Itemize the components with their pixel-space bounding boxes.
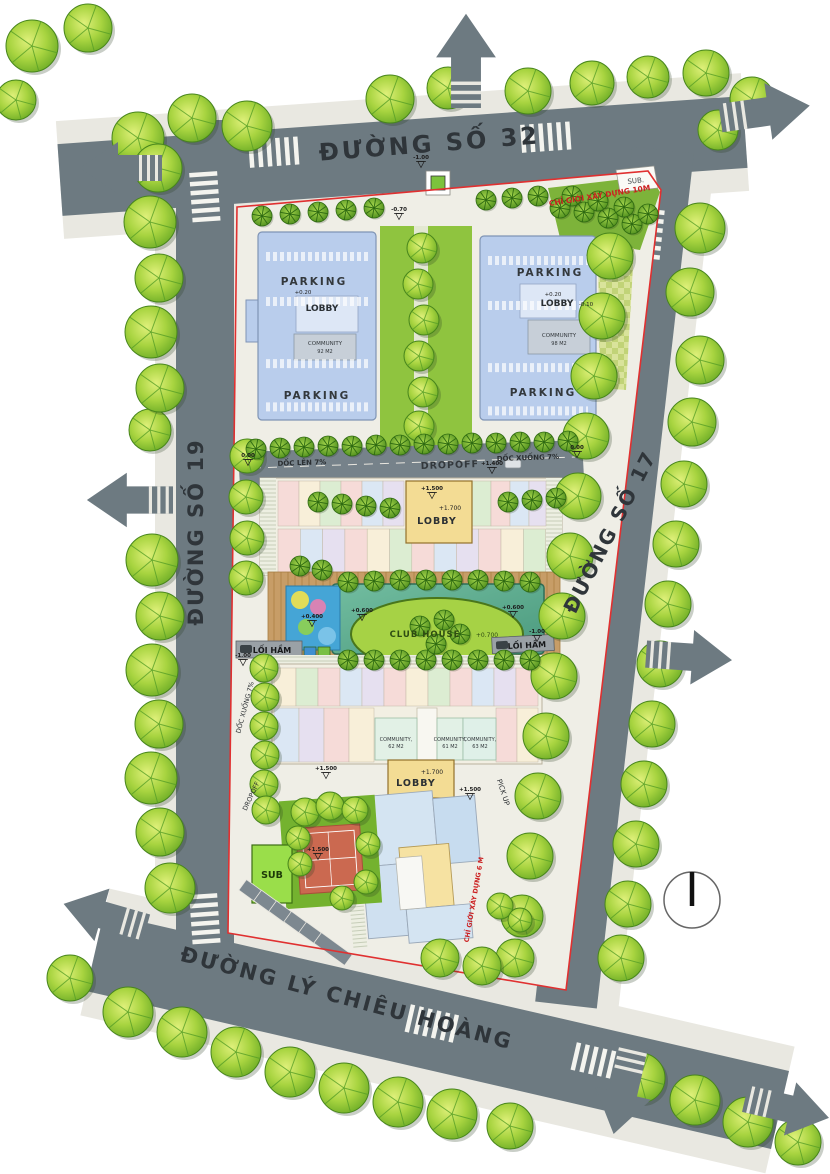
apartment-unit bbox=[278, 481, 299, 526]
svg-text:+0.600: +0.600 bbox=[502, 605, 524, 611]
svg-text:+1.500: +1.500 bbox=[315, 766, 337, 772]
upper-lobby-label: LOBBY bbox=[417, 516, 457, 527]
dropoff-label: DROPOFF bbox=[421, 459, 480, 472]
apartment-unit bbox=[299, 708, 324, 762]
parking-right-community-label: COMMUNITY bbox=[542, 333, 577, 339]
svg-text:+1.500: +1.500 bbox=[421, 486, 443, 492]
entrance-gate bbox=[426, 171, 450, 195]
apartment-unit bbox=[523, 529, 545, 573]
svg-text:+1.500: +1.500 bbox=[459, 787, 481, 793]
svg-text:-1.00: -1.00 bbox=[413, 155, 429, 161]
parking-left-community-area: 92 M2 bbox=[317, 349, 332, 355]
street-left-label: ĐƯỜNG SỐ 19 bbox=[180, 438, 208, 625]
parking-left-lobby-level: +0.20 bbox=[295, 290, 312, 296]
parking-left-bottom-label: PARKING bbox=[284, 390, 350, 402]
lower-community1-area: 62 M2 bbox=[388, 744, 403, 750]
svg-text:-1.00: -1.00 bbox=[529, 629, 545, 635]
lower-community2-area: 61 M2 bbox=[442, 744, 457, 750]
parking-right-lobby-level2: -0.10 bbox=[579, 302, 594, 308]
apartment-unit bbox=[318, 668, 340, 706]
parking-right-community-area: 98 M2 bbox=[551, 341, 566, 347]
svg-text:+1.400: +1.400 bbox=[481, 461, 503, 467]
svg-text:+1.500: +1.500 bbox=[307, 847, 329, 853]
community-room bbox=[294, 334, 356, 360]
apartment-unit bbox=[296, 668, 318, 706]
svg-text:+0.600: +0.600 bbox=[351, 608, 373, 614]
tree-icon bbox=[0, 80, 39, 123]
apartment-unit bbox=[324, 708, 349, 762]
svg-text:-0.70: -0.70 bbox=[391, 207, 407, 213]
parking-right-lobby-label: LOBBY bbox=[541, 299, 574, 309]
apartment-unit bbox=[479, 529, 501, 573]
tree-icon bbox=[47, 955, 96, 1004]
svg-text:+0.400: +0.400 bbox=[301, 614, 323, 620]
lobby-core bbox=[296, 296, 358, 332]
lower-lobby-level: +1.700 bbox=[421, 769, 443, 776]
apartment-unit bbox=[406, 668, 428, 706]
club-house-label: CLUB HOUSE bbox=[390, 630, 461, 640]
parking-right-top-label: PARKING bbox=[517, 267, 583, 279]
site-plan: ĐƯỜNG SỐ 32 ĐƯỜNG SỐ 19 ĐƯỜNG SỐ 17 ĐƯỜN… bbox=[0, 0, 830, 1174]
apartment-unit bbox=[501, 529, 523, 573]
apartment-unit bbox=[349, 708, 374, 762]
apartment-unit bbox=[428, 668, 450, 706]
apartment-unit bbox=[362, 668, 384, 706]
north-indicator bbox=[664, 872, 720, 928]
svg-text:0.00: 0.00 bbox=[241, 453, 255, 459]
lower-community3-area: 63 M2 bbox=[472, 744, 487, 750]
lower-community2-label: COMMUNITY, bbox=[434, 737, 467, 743]
apartment-unit bbox=[496, 708, 517, 762]
parking-left-top-label: PARKING bbox=[281, 276, 347, 288]
club-house-level: +0.700 bbox=[476, 632, 498, 639]
parking-right-lobby-level: +0.20 bbox=[545, 292, 562, 298]
site-plan-drawing: ĐƯỜNG SỐ 32 ĐƯỜNG SỐ 19 ĐƯỜNG SỐ 17 ĐƯỜN… bbox=[0, 0, 830, 1174]
apartment-unit bbox=[367, 529, 389, 573]
apartment-unit bbox=[494, 668, 516, 706]
apartment-unit bbox=[340, 668, 362, 706]
apartment-unit bbox=[450, 668, 472, 706]
apartment-unit bbox=[384, 668, 406, 706]
lower-lobby-label: LOBBY bbox=[396, 778, 436, 789]
lower-community1-label: COMMUNITY, bbox=[380, 737, 413, 743]
parking-left-community-label: COMMUNITY bbox=[308, 341, 343, 347]
parking-left-lobby-label: LOBBY bbox=[306, 304, 339, 314]
upper-lobby-level: +1.700 bbox=[439, 505, 461, 512]
tree-icon bbox=[6, 20, 61, 75]
apartment-unit bbox=[345, 529, 367, 573]
apartment-unit bbox=[472, 481, 491, 526]
svg-text:0.00: 0.00 bbox=[570, 445, 584, 451]
tree-icon bbox=[64, 4, 115, 55]
apartment-unit bbox=[472, 668, 494, 706]
parking-right-bottom-label: PARKING bbox=[510, 387, 576, 399]
sub-station-label: SUB bbox=[261, 870, 283, 881]
lower-community3-label: COMMUNITY, bbox=[464, 737, 497, 743]
svg-text:-1.00: -1.00 bbox=[235, 653, 251, 659]
